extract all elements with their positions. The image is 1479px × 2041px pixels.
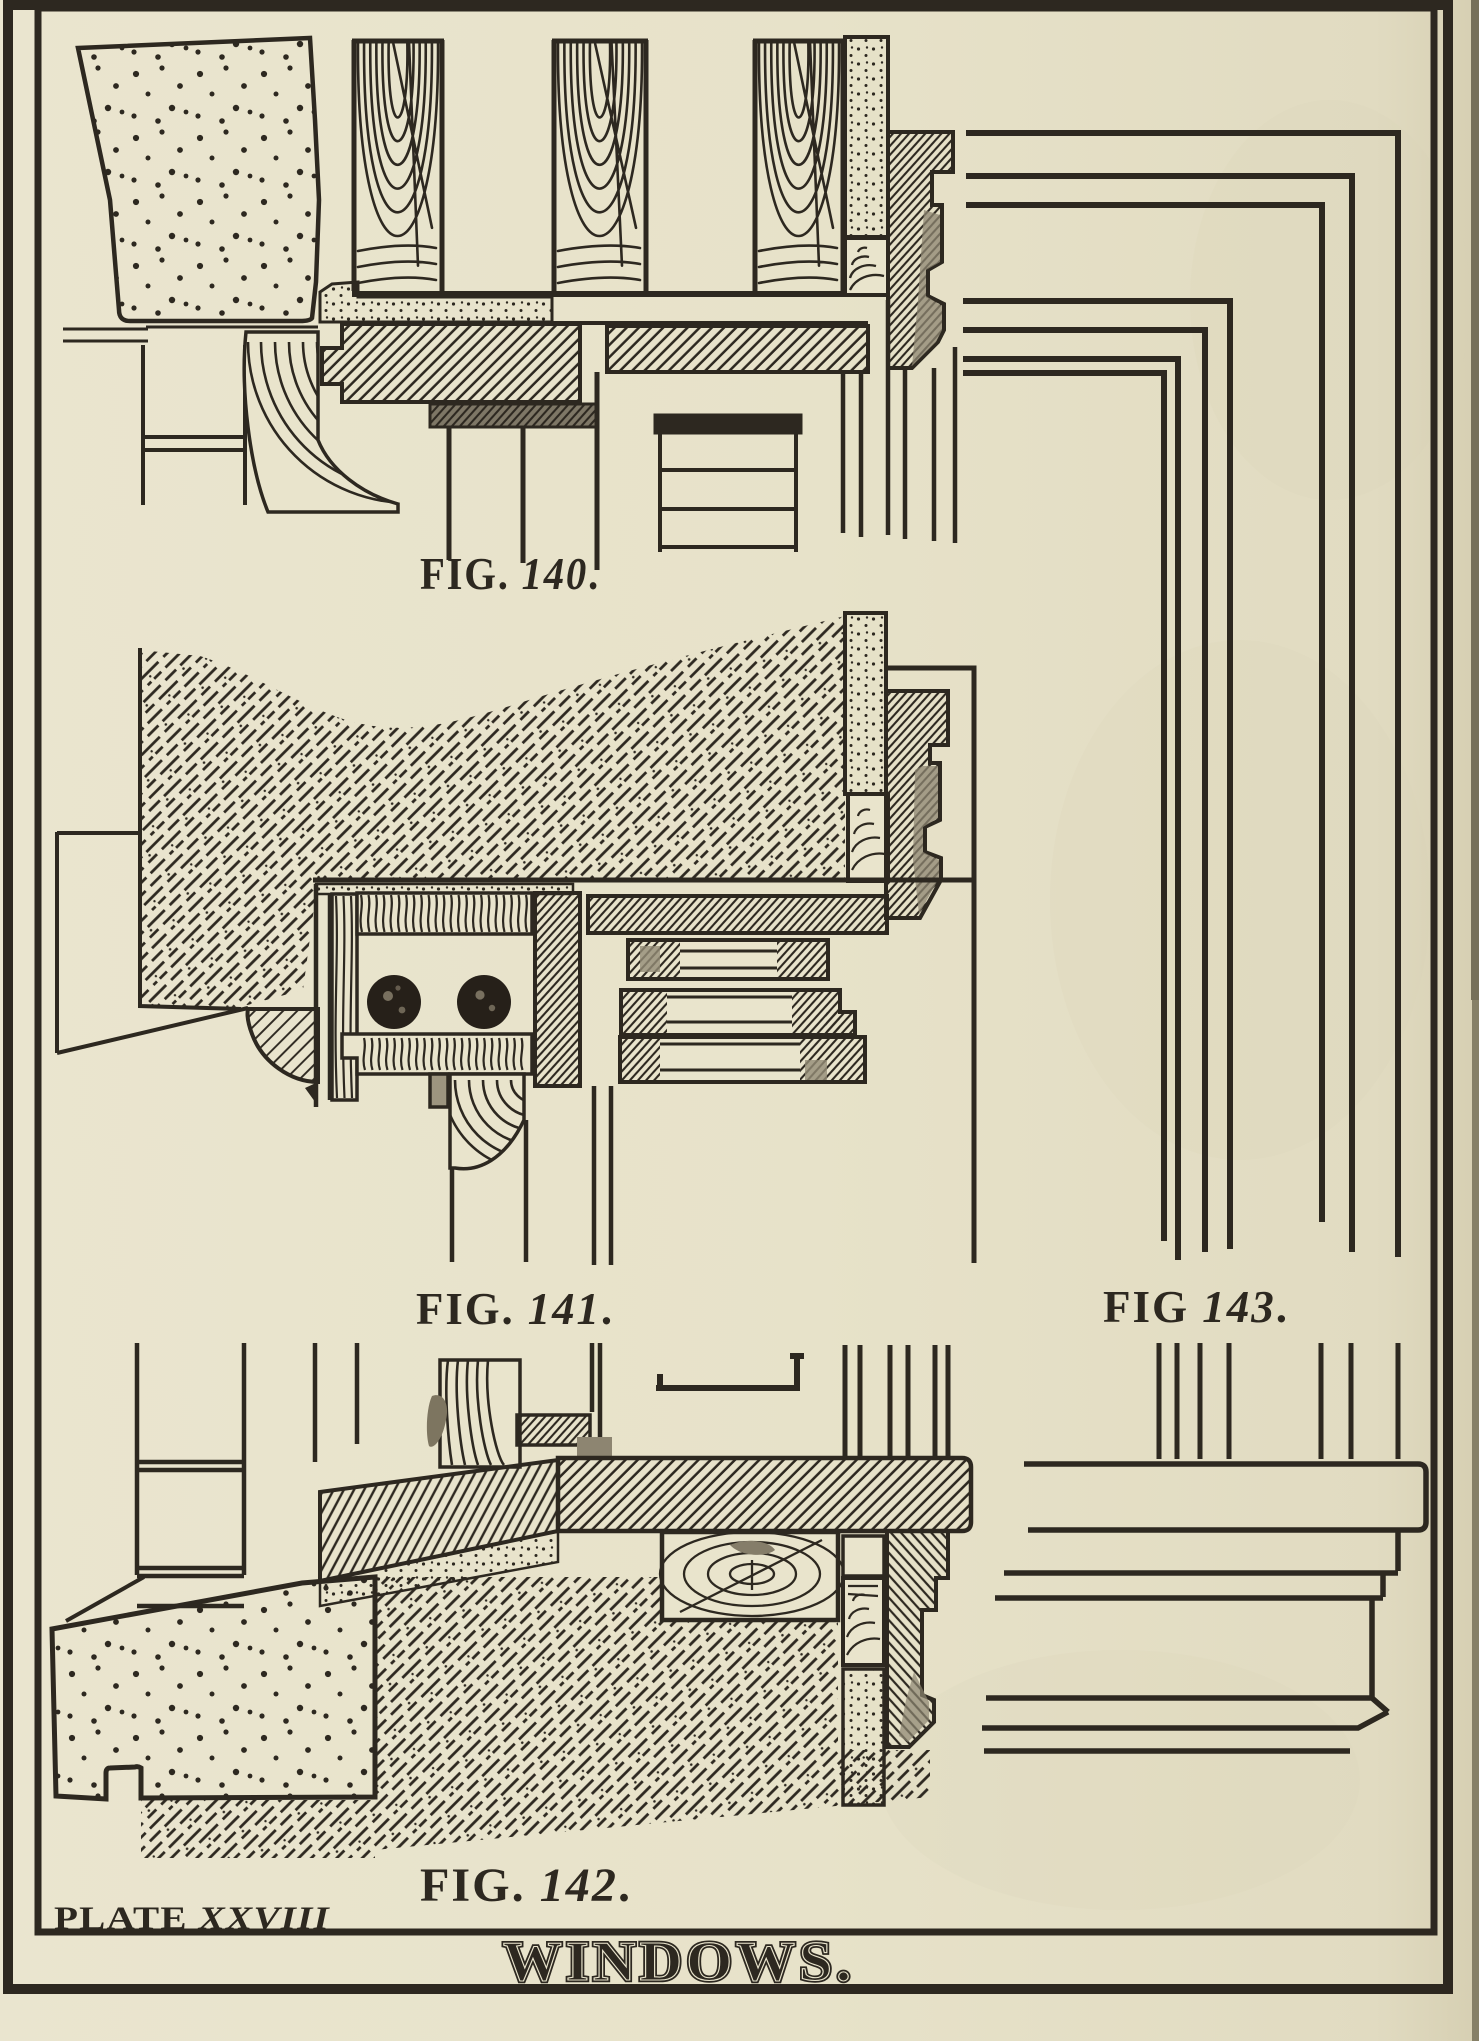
svg-text:PLATE XXVIII: PLATE XXVIII — [54, 1901, 330, 1937]
svg-text:WINDOWS.: WINDOWS. — [503, 1931, 855, 1993]
svg-text:FIG. 142.: FIG. 142. — [420, 1859, 632, 1912]
svg-text:FIG. 141.: FIG. 141. — [416, 1283, 614, 1334]
svg-text:FIG 143.: FIG 143. — [1103, 1281, 1289, 1332]
svg-text:FIG. 140.: FIG. 140. — [420, 548, 600, 599]
